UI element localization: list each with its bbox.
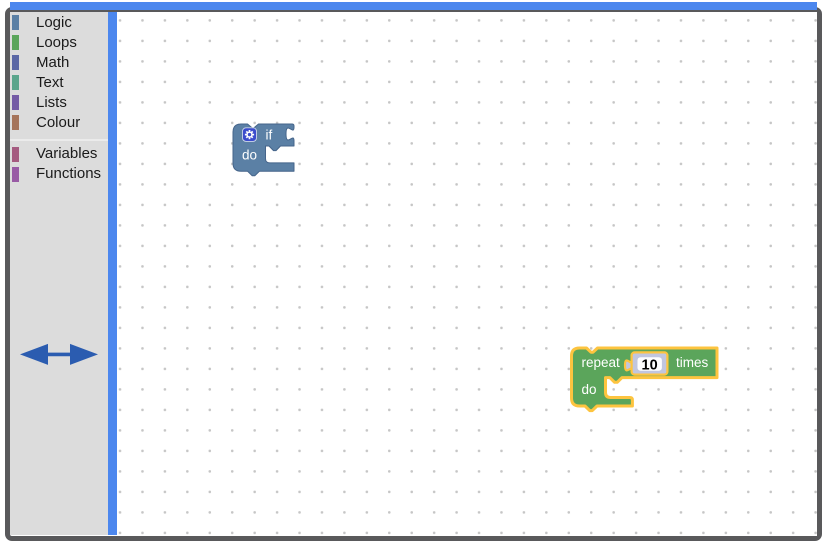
svg-text:if: if <box>266 127 273 142</box>
svg-text:times: times <box>676 355 709 370</box>
svg-text:10: 10 <box>642 357 658 373</box>
svg-text:do: do <box>582 382 597 397</box>
svg-text:do: do <box>242 148 257 163</box>
svg-text:repeat: repeat <box>582 355 621 370</box>
